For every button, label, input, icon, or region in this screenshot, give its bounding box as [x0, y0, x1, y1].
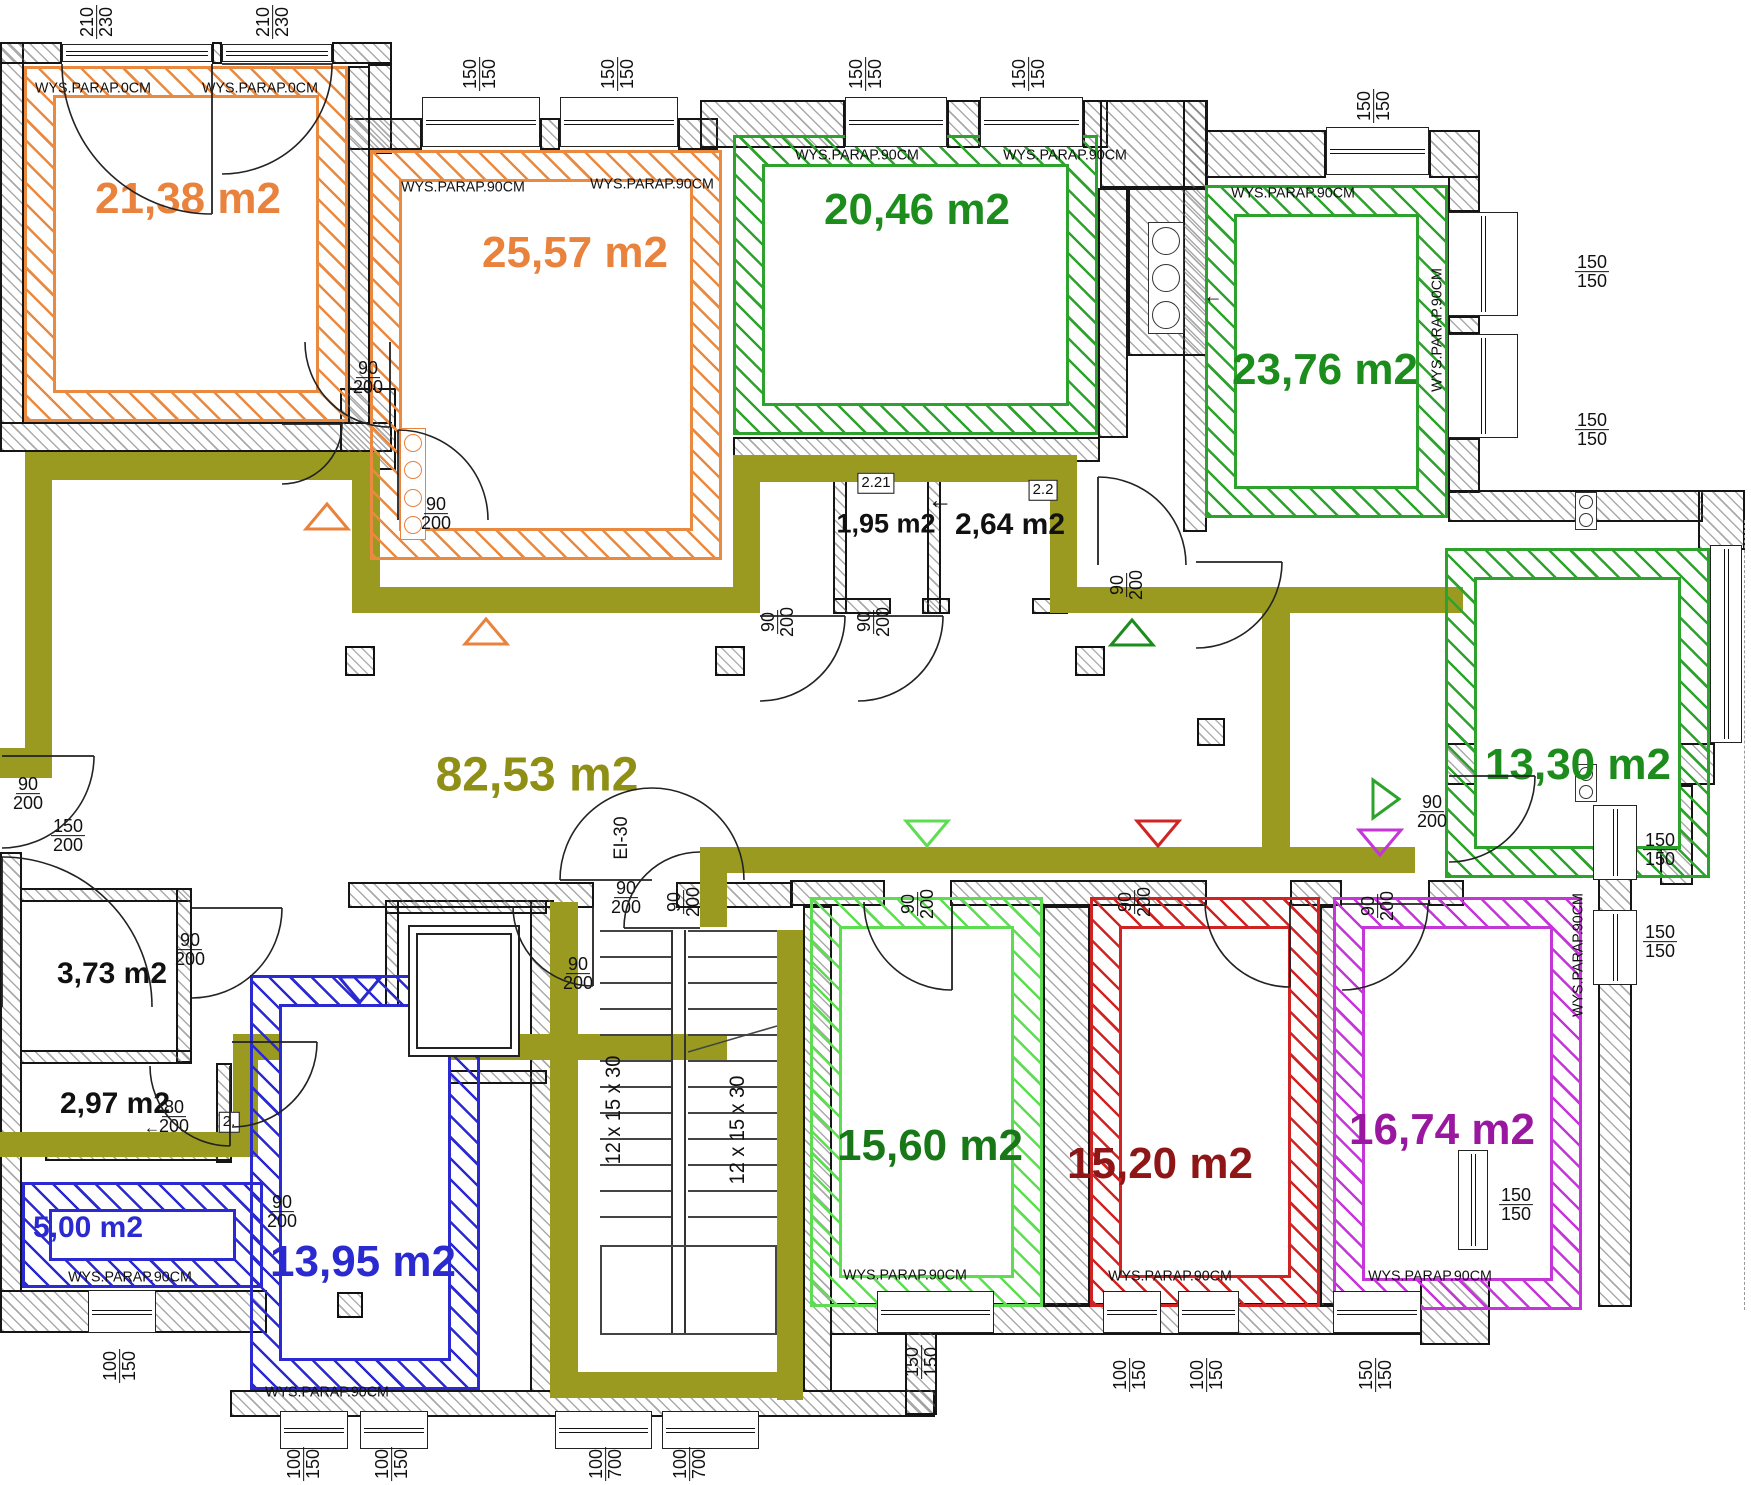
door-swing-arc	[62, 64, 212, 214]
direction-triangle-marker	[1111, 620, 1153, 645]
door-swing-arc	[760, 616, 845, 701]
direction-triangle-marker	[1137, 821, 1179, 846]
door-swing-arc	[150, 1066, 230, 1146]
door-swing-arc	[232, 1042, 317, 1127]
direction-triangle-marker	[306, 504, 348, 529]
door-swing-arc	[282, 424, 342, 484]
door-swing-arc	[398, 430, 488, 520]
door-swing-arc	[305, 342, 390, 427]
door-swing-arc	[1342, 904, 1428, 990]
door-swing-arc	[513, 906, 593, 986]
door-swing-arc	[222, 64, 332, 174]
direction-triangle-marker	[1373, 780, 1399, 818]
door-swing-arc	[858, 616, 943, 701]
door-swing-arc	[1449, 776, 1535, 862]
door-swing-arc	[2, 857, 152, 1007]
direction-triangle-marker	[339, 977, 381, 1002]
door-and-marker-layer	[0, 0, 1751, 1485]
door-swing-arc	[864, 902, 952, 990]
door-swing-arc	[624, 852, 700, 928]
direction-triangle-marker	[906, 821, 948, 846]
door-swing-arc	[2, 756, 94, 848]
stair-cut-line	[688, 1026, 777, 1052]
direction-triangle-marker	[465, 619, 507, 644]
door-swing-arc	[1098, 477, 1186, 565]
direction-triangle-marker	[1359, 830, 1401, 855]
floor-plan-canvas: 21,38 m225,57 m220,46 m223,76 m213,30 m2…	[0, 0, 1751, 1485]
door-swing-arc	[1196, 562, 1282, 648]
door-swing-arc	[560, 788, 744, 880]
door-swing-arc	[1205, 902, 1290, 987]
door-swing-arc	[192, 908, 282, 998]
